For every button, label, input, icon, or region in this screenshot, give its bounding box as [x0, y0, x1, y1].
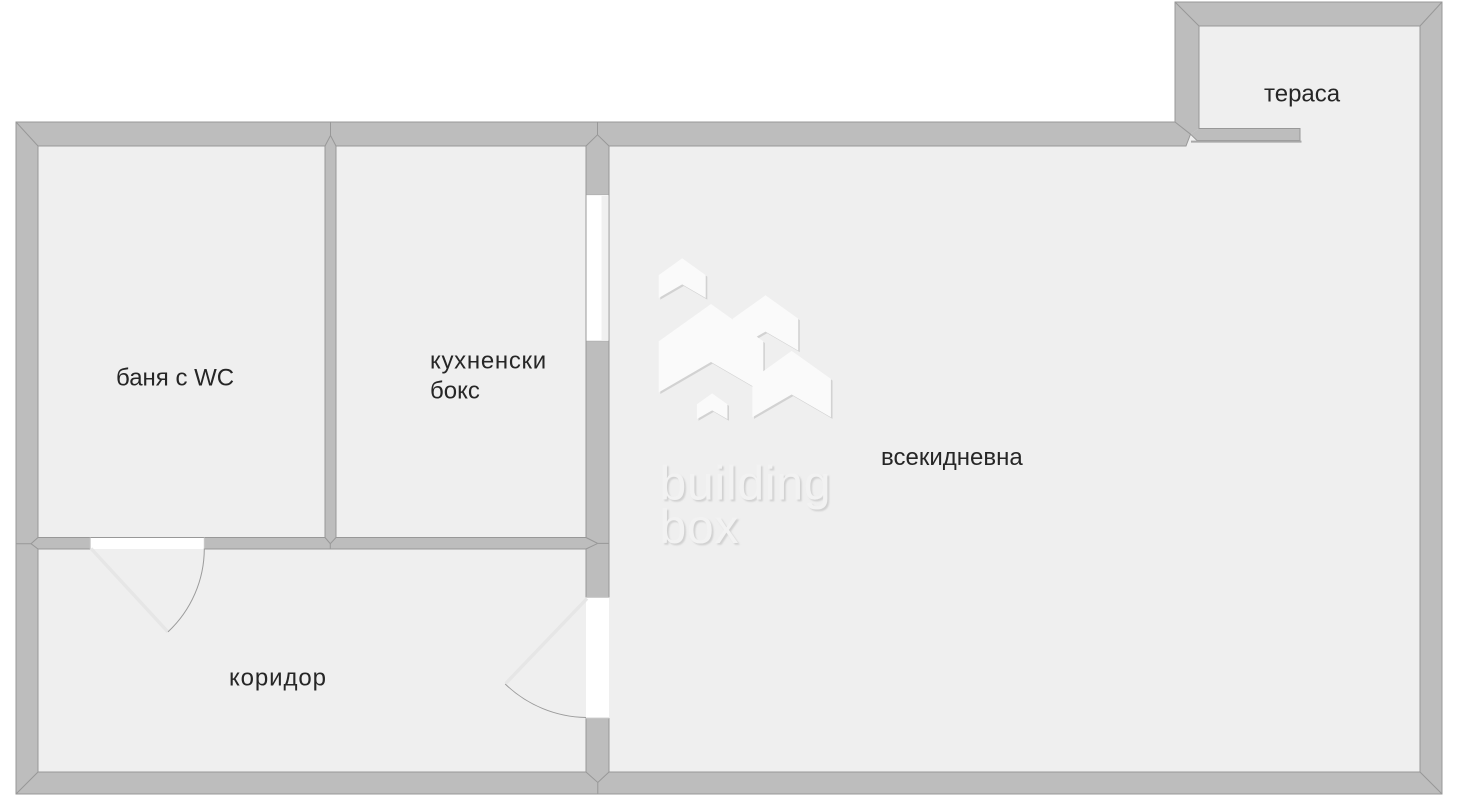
svg-text:баня с WC: баня с WC	[116, 365, 234, 392]
svg-text:box: box	[660, 501, 740, 554]
svg-text:коридор: коридор	[229, 665, 327, 692]
svg-text:тераса: тераса	[1264, 80, 1341, 107]
svg-text:бокс: бокс	[430, 377, 480, 404]
svg-text:кухненски: кухненски	[430, 347, 547, 374]
svg-text:всекидневна: всекидневна	[881, 444, 1023, 471]
